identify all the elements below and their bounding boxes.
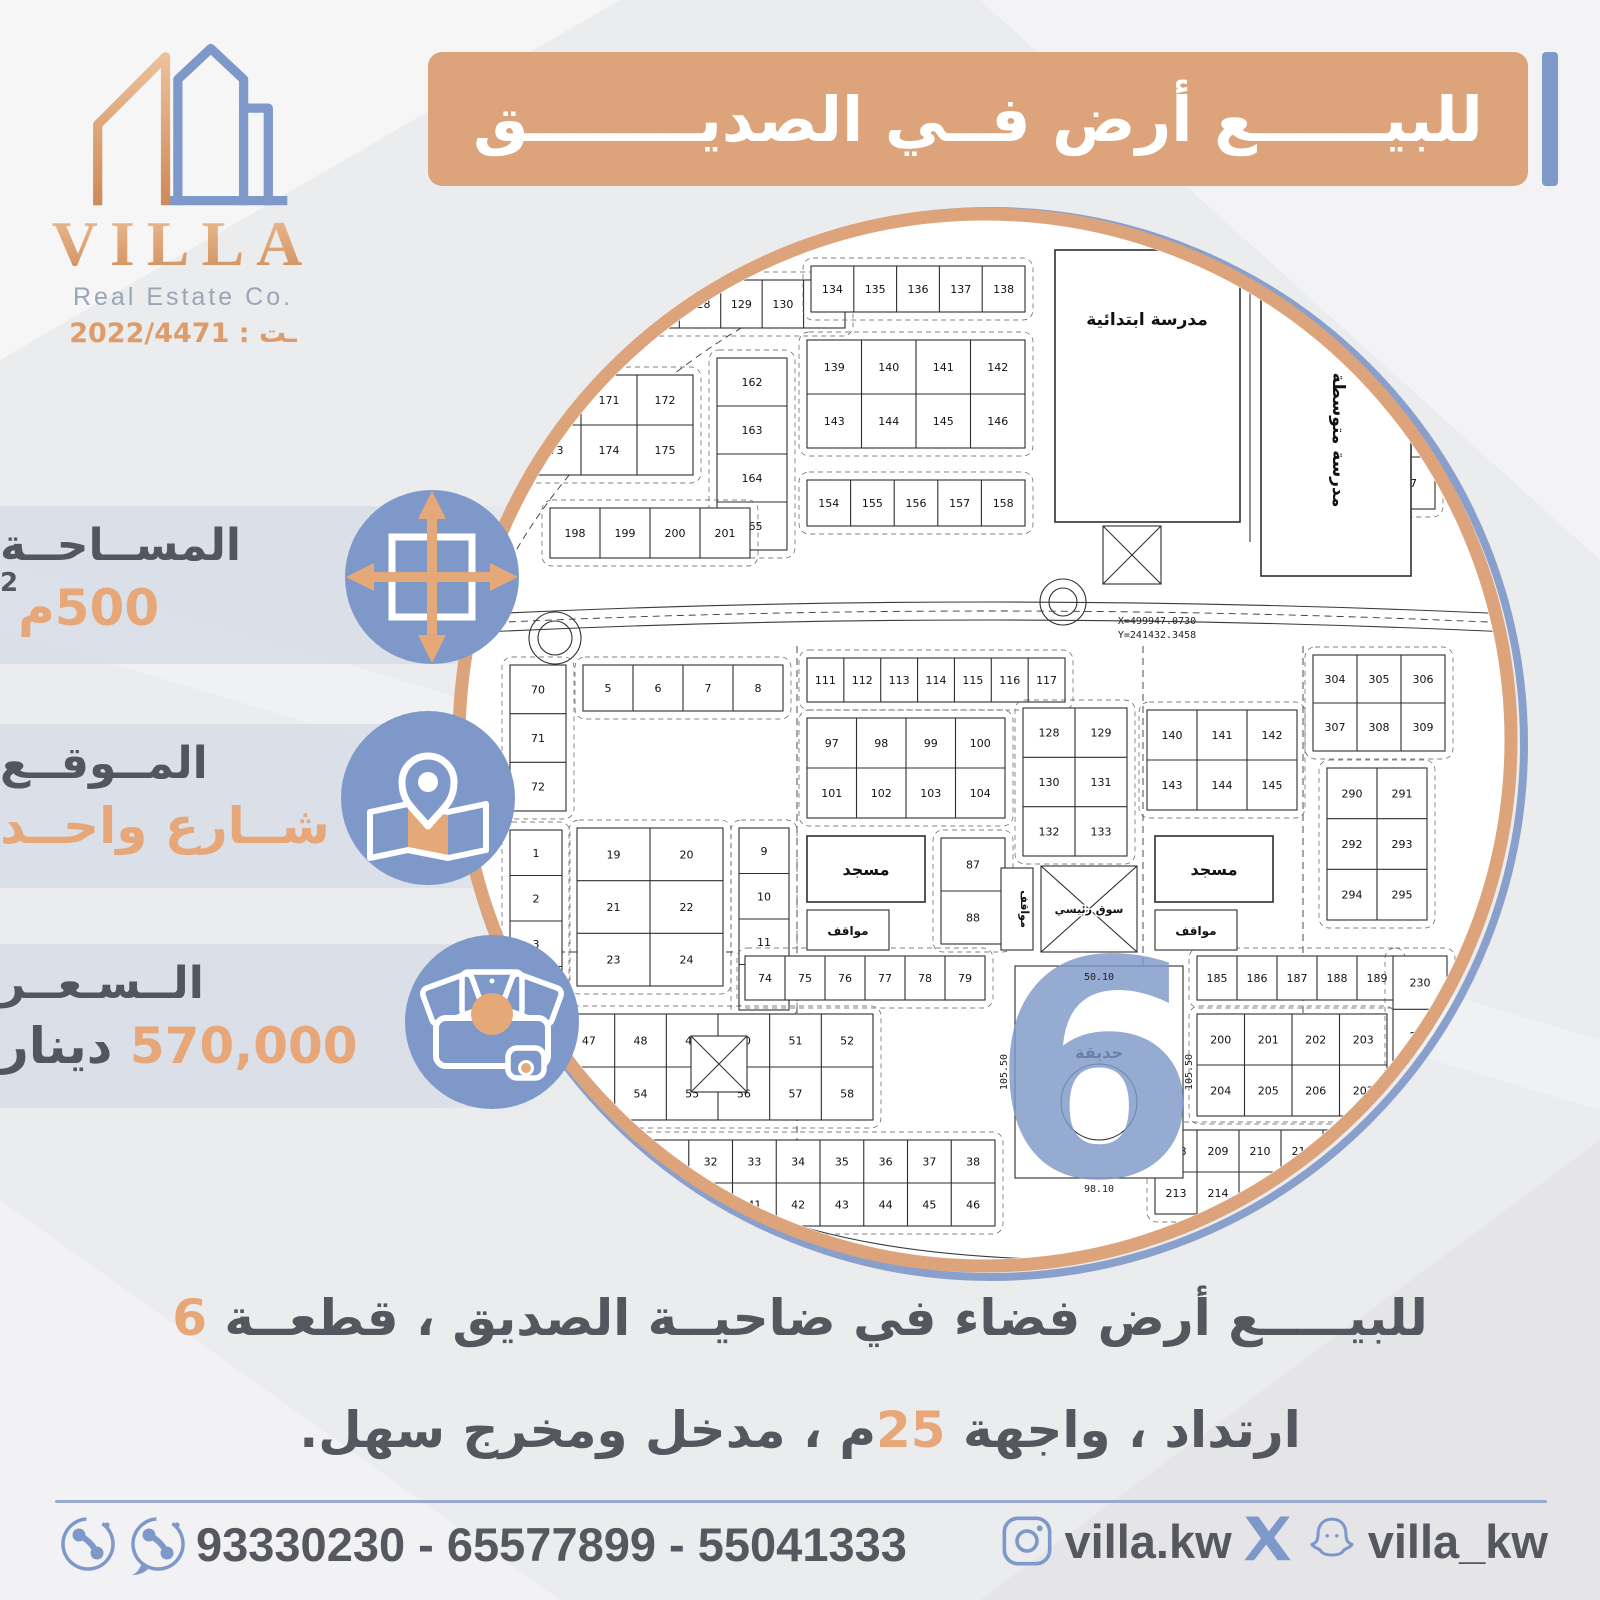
plot-number: 2 xyxy=(533,892,540,905)
map-annotation: X=499947.0730 xyxy=(1118,616,1196,627)
location-info: المــوقــع شــارع واحــد xyxy=(0,738,342,855)
plot-number: 114 xyxy=(926,674,947,687)
plot-number: 158 xyxy=(993,497,1014,510)
plot-strip: 170171172173174175 xyxy=(517,367,701,483)
area-label: المســاحــة xyxy=(0,520,342,571)
school-label: مدرسة ابتدائية xyxy=(1086,310,1208,330)
plot-number: 8 xyxy=(755,682,762,695)
plot-number: 137 xyxy=(950,283,971,296)
phone-numbers: 93330230 - 65577899 - 55041333 xyxy=(196,1517,907,1572)
plot-number: 71 xyxy=(531,732,545,745)
plot-number: 144 xyxy=(1212,779,1233,792)
plot-number: 163 xyxy=(742,424,763,437)
plot-number: 36 xyxy=(879,1156,893,1169)
price-label: الــسـعــر xyxy=(0,958,382,1009)
logo-building-icon xyxy=(73,28,293,213)
license-number: ـت : 2022/4471 xyxy=(18,318,348,349)
plot-number: 117 xyxy=(1036,674,1057,687)
plot-number: 309 xyxy=(1413,721,1434,734)
school-area: مدرسة ابتدائية xyxy=(1055,250,1240,522)
plot-number: 200 xyxy=(1210,1034,1231,1047)
plot-number: 294 xyxy=(1342,889,1363,902)
plot-number: 136 xyxy=(908,283,929,296)
plot-number: 39 xyxy=(660,1199,674,1212)
plot-number: 54 xyxy=(634,1088,648,1101)
plot-number: 11 xyxy=(757,936,771,949)
description-line-1: للبيـــــع أرض فضاء في ضاحيــة الصديق ، … xyxy=(80,1262,1520,1374)
utility-box xyxy=(1103,526,1161,584)
plot-number: 6 xyxy=(655,682,662,695)
x-icon xyxy=(1240,1513,1296,1569)
title-banner: للبيــــــع أرض فــي الصديــــــــق xyxy=(428,52,1528,186)
plot-number: 232 xyxy=(1410,1083,1431,1096)
plot-number: 78 xyxy=(918,972,932,985)
location-label: المــوقــع xyxy=(0,738,342,789)
plot-number: 42 xyxy=(791,1199,805,1212)
plot-number: 205 xyxy=(1258,1085,1279,1098)
plot-number: 306 xyxy=(1413,673,1434,686)
plot-number: 188 xyxy=(1327,972,1348,985)
plot-number: 157 xyxy=(949,497,970,510)
plot-number: 133 xyxy=(1091,825,1112,838)
plot-number: 20 xyxy=(680,848,694,861)
instagram-handle: villa.kw xyxy=(1064,1514,1231,1569)
mosque-area: مسجد xyxy=(1155,836,1273,902)
plot-number: 75 xyxy=(798,972,812,985)
whatsapp-icon xyxy=(126,1512,190,1576)
plot-number: 5 xyxy=(605,682,612,695)
map-annotation: 98.10 xyxy=(1084,1184,1114,1195)
plot-number: 52 xyxy=(840,1035,854,1048)
map-annotation: 105.50 xyxy=(999,1054,1010,1090)
expand-icon xyxy=(337,482,527,672)
plot-number: 23 xyxy=(607,954,621,967)
parking-area: مواقف xyxy=(807,910,889,950)
plot-number: 35 xyxy=(835,1156,849,1169)
plot-strip: 198199200201 xyxy=(542,500,758,566)
plot-strip: 154155156157158 xyxy=(799,472,1033,534)
utility-box xyxy=(691,1036,747,1092)
plot-number: 128 xyxy=(1039,727,1060,740)
page-title: للبيــــــع أرض فــي الصديــــــــق xyxy=(473,83,1483,156)
plot-number: 304 xyxy=(1325,673,1346,686)
plot-strip: 979899100101102103104 xyxy=(799,710,1013,826)
plot-number: 98 xyxy=(874,737,888,750)
plot-number: 97 xyxy=(825,737,839,750)
plot-number: 203 xyxy=(1353,1034,1374,1047)
location-icon xyxy=(333,703,523,893)
plot-number: 38 xyxy=(966,1156,980,1169)
plot-number: 7 xyxy=(705,682,712,695)
plot-number: 307 xyxy=(1325,721,1346,734)
plot-number: 186 xyxy=(1247,972,1268,985)
plot-number: 139 xyxy=(824,361,845,374)
price-value: 570,000 دينار xyxy=(0,1017,382,1075)
plot-number: 206 xyxy=(1305,1085,1326,1098)
plot-number: 102 xyxy=(871,787,892,800)
plot-number: 172 xyxy=(655,394,676,407)
plot-number: 103 xyxy=(920,787,941,800)
plot-number: 201 xyxy=(715,527,736,540)
plot-number: 175 xyxy=(655,444,676,457)
mosque-label: مسجد xyxy=(843,860,890,879)
plot-number: 141 xyxy=(1212,729,1233,742)
company-name: VILLA xyxy=(18,207,348,281)
footer-socials: villa.kw villa_kw xyxy=(998,1512,1548,1570)
plot-number: 58 xyxy=(840,1088,854,1101)
site-map: 1251261271281291301311701711721731741751… xyxy=(440,195,1530,1285)
plot-number: 74 xyxy=(758,972,772,985)
plot-number: 77 xyxy=(878,972,892,985)
plot-strip: 747576777879 xyxy=(737,948,993,1008)
description-line-2: ارتداد ، واجهة 25م ، مدخل ومخرج سهل. xyxy=(80,1374,1520,1486)
plot-number: 99 xyxy=(924,737,938,750)
real-estate-poster: VILLA Real Estate Co. ـت : 2022/4471 للب… xyxy=(0,0,1600,1600)
map-annotation: Y=241432.3458 xyxy=(1118,630,1196,641)
plot-number: 156 xyxy=(906,497,927,510)
plot-number: 33 xyxy=(747,1156,761,1169)
plot-number: 46 xyxy=(966,1199,980,1212)
plot-number: 204 xyxy=(1210,1085,1231,1098)
plot-number: 100 xyxy=(970,737,991,750)
snapchat-icon xyxy=(1304,1513,1360,1569)
plot-number: 72 xyxy=(531,781,545,794)
plot-number: 292 xyxy=(1342,838,1363,851)
company-logo: VILLA Real Estate Co. ـت : 2022/4471 xyxy=(18,28,348,349)
instagram-icon xyxy=(998,1512,1056,1570)
map-annotation: 50.10 xyxy=(1084,972,1114,983)
plot-number: 57 xyxy=(789,1088,803,1101)
plot-number: 19 xyxy=(607,848,621,861)
plot-number: 127 xyxy=(648,298,669,311)
plot-strip: 185186187188189 xyxy=(1189,948,1405,1008)
area-info: المســاحــة 500م2 xyxy=(0,520,342,637)
plot-number: 142 xyxy=(1262,729,1283,742)
location-value: شــارع واحــد xyxy=(0,797,342,855)
plot-number: 113 xyxy=(889,674,910,687)
plot-number: 132 xyxy=(1039,825,1060,838)
plot-number: 79 xyxy=(958,972,972,985)
school-label: مدرسة متوسطة xyxy=(1328,373,1348,508)
plot-number: 293 xyxy=(1392,838,1413,851)
plot-strip: 192021222324 xyxy=(569,820,731,994)
plot-number: 43 xyxy=(835,1199,849,1212)
price-info: الــسـعــر 570,000 دينار xyxy=(0,958,382,1075)
plot-number: 143 xyxy=(1162,779,1183,792)
plot-number: 216 xyxy=(1292,1187,1313,1200)
plot-number: 290 xyxy=(1342,787,1363,800)
plot-number: 308 xyxy=(1369,721,1390,734)
plot-number: 174 xyxy=(599,444,620,457)
money-icon xyxy=(397,927,587,1117)
plot-number: 170 xyxy=(543,394,564,407)
footer-contacts: 93330230 - 65577899 - 55041333 xyxy=(56,1512,907,1576)
plot-number: 189 xyxy=(1367,972,1388,985)
map-annotation: 105.50 xyxy=(1184,1054,1195,1090)
plot-number: 155 xyxy=(862,497,883,510)
plot-number: 115 xyxy=(962,674,983,687)
plot-number: 21 xyxy=(607,901,621,914)
plot-number: 141 xyxy=(933,361,954,374)
plot-number: 144 xyxy=(878,415,899,428)
plot-number: 198 xyxy=(565,527,586,540)
plot-number: 291 xyxy=(1392,787,1413,800)
parking-label: مواقف xyxy=(827,924,868,939)
plot-strip: 5678 xyxy=(575,657,791,719)
plot-number: 76 xyxy=(838,972,852,985)
plot-number: 217 xyxy=(1334,1187,1355,1200)
plot-number: 34 xyxy=(791,1156,805,1169)
plot-number: 126 xyxy=(607,298,628,311)
plot-number: 201 xyxy=(1258,1034,1279,1047)
plot-number: 112 xyxy=(852,674,873,687)
plot-number: 22 xyxy=(680,901,694,914)
social-handle: villa_kw xyxy=(1368,1514,1548,1569)
phone-icon xyxy=(56,1512,120,1576)
plot-number: 9 xyxy=(761,845,768,858)
plot-number: 202 xyxy=(1305,1034,1326,1047)
plot-number: 111 xyxy=(815,674,836,687)
plot-number: 48 xyxy=(634,1035,648,1048)
plot-number: 162 xyxy=(742,376,763,389)
plot-strip: 111112113114115116117 xyxy=(799,650,1073,710)
company-subtitle: Real Estate Co. xyxy=(18,283,348,312)
plot-number: 146 xyxy=(987,415,1008,428)
footer-divider xyxy=(55,1500,1547,1503)
plot-number: 87 xyxy=(966,859,980,872)
plot-strip: 128129130131132133 xyxy=(1015,700,1135,864)
area-value: 500م2 xyxy=(0,579,342,637)
plot-number: 140 xyxy=(1162,729,1183,742)
mosque-area: مسجد xyxy=(807,836,925,902)
plot-number: 187 xyxy=(1287,972,1308,985)
plot-number: 305 xyxy=(1369,673,1390,686)
plot-number: 142 xyxy=(987,361,1008,374)
plot-number: 214 xyxy=(1208,1187,1229,1200)
plot-number: 164 xyxy=(742,472,763,485)
plot-number: 44 xyxy=(879,1199,893,1212)
plot-number: 134 xyxy=(822,283,843,296)
plot-number: 51 xyxy=(789,1035,803,1048)
plot-number: 171 xyxy=(599,394,620,407)
plot-number: 209 xyxy=(1208,1145,1229,1158)
plot-number: 185 xyxy=(1207,972,1228,985)
plot-number: 200 xyxy=(665,527,686,540)
plot-number: 129 xyxy=(731,298,752,311)
plot-number: 24 xyxy=(680,954,694,967)
description: للبيـــــع أرض فضاء في ضاحيــة الصديق ، … xyxy=(80,1262,1520,1486)
plot-number: 199 xyxy=(615,527,636,540)
plot-strip: 290291292293294295 xyxy=(1319,760,1435,928)
plot-number: 295 xyxy=(1392,889,1413,902)
plot-number: 116 xyxy=(999,674,1020,687)
plot-number: 10 xyxy=(757,890,771,903)
plot-number: 145 xyxy=(933,415,954,428)
plot-number: 131 xyxy=(1091,776,1112,789)
plot-number: 130 xyxy=(772,298,793,311)
plot-number: 32 xyxy=(704,1156,718,1169)
plot-number: 230 xyxy=(1410,977,1431,990)
plot-strip: 304305306307308309 xyxy=(1305,647,1453,759)
plot-number: 88 xyxy=(966,912,980,925)
plot-number: 37 xyxy=(922,1156,936,1169)
plot-strip: 140141142143144145 xyxy=(1139,702,1305,818)
plot-strip: 134135136137138 xyxy=(803,258,1033,320)
plot-number: 130 xyxy=(1039,776,1060,789)
title-accent-bar xyxy=(1542,52,1558,186)
plot-number: 138 xyxy=(993,283,1014,296)
plot-number: 70 xyxy=(531,683,545,696)
plot-number: 1 xyxy=(533,847,540,860)
plot-number: 101 xyxy=(821,787,842,800)
plot-number: 140 xyxy=(878,361,899,374)
plot-number: 154 xyxy=(818,497,839,510)
plot-number: 45 xyxy=(922,1199,936,1212)
plot-strip: 139140141142143144145146 xyxy=(799,332,1033,456)
plot-number: 135 xyxy=(865,283,886,296)
plot-number: 143 xyxy=(824,415,845,428)
plot-number: 104 xyxy=(970,787,991,800)
plot-number: 145 xyxy=(1262,779,1283,792)
plot-number: 210 xyxy=(1250,1145,1271,1158)
plot-number: 129 xyxy=(1091,727,1112,740)
plot-number: 125 xyxy=(565,298,586,311)
mosque-label: مسجد xyxy=(1191,860,1238,879)
